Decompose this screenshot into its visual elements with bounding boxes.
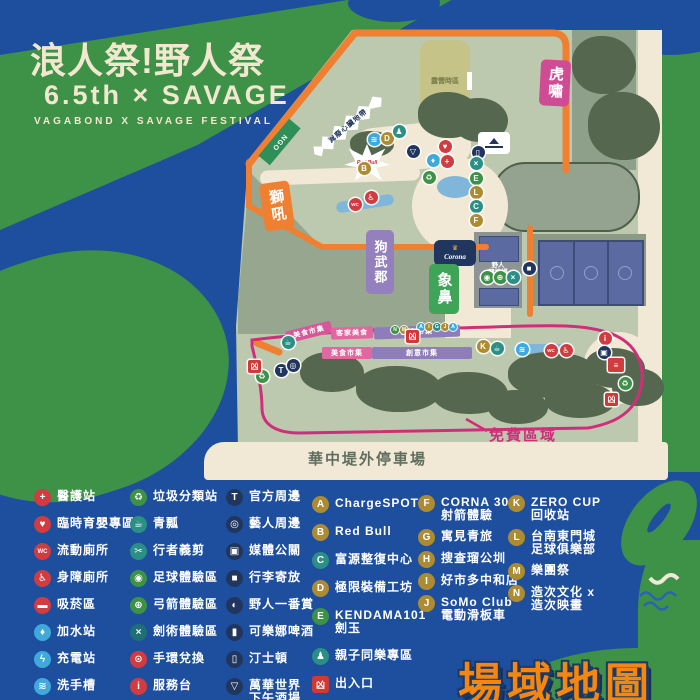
legend-A-icon: A xyxy=(312,496,329,513)
legend-label: Red Bull xyxy=(335,525,392,538)
legend-i-icon: i xyxy=(130,678,147,695)
booth-dot-J: J xyxy=(441,323,449,331)
legend-label: 可樂娜啤酒 xyxy=(249,625,314,638)
handwash-marker: ≋ xyxy=(368,133,381,146)
legend-item-加水站: ♦加水站 xyxy=(34,625,96,641)
legend-item-弓箭體驗區: ⊕弓箭體驗區 xyxy=(130,598,218,614)
legend-label: 搜查瑠公圳 xyxy=(441,552,506,565)
legend-item-汀士頓: ▯汀士頓 xyxy=(226,652,288,668)
camping-gate xyxy=(467,72,472,90)
market-band: 客家美食 xyxy=(331,326,373,339)
recycle-marker: ♻ xyxy=(619,377,632,390)
festival-map-poster: 浪人祭!野人祭 6.5th × SAVAGE VAGABOND X SAVAGE… xyxy=(0,0,700,700)
tree xyxy=(488,390,548,424)
poster-subtitle: 6.5th × SAVAGE xyxy=(44,80,290,111)
accessible-toilet-marker: ♿ xyxy=(365,191,378,204)
crown-icon: ♛ xyxy=(452,245,458,253)
legend-F-icon: F xyxy=(418,495,435,512)
legend-item-野人一番賞: ◐野人一番賞 xyxy=(226,598,314,614)
stage-label-狗武郡: 狗武郡 xyxy=(366,230,394,294)
legend-label: 洗手槽 xyxy=(57,679,96,692)
booth-l-marker: L xyxy=(470,186,483,199)
legend-item-富源整復中心: C富源整復中心 xyxy=(312,553,413,569)
pond xyxy=(437,176,473,198)
legend-label: 親子同樂專區 xyxy=(335,649,413,662)
legend-⊙-icon: ⊙ xyxy=(130,651,147,668)
legend-K-icon: K xyxy=(508,495,525,512)
merch-marker: T xyxy=(275,364,288,377)
legend-item-媒體公關: ▣媒體公關 xyxy=(226,544,301,560)
legend-item-ZERO CUP: KZERO CUP回收站 xyxy=(508,496,601,522)
legend-✂-icon: ✂ xyxy=(130,543,147,560)
legend-label: 極限裝備工坊 xyxy=(335,581,413,594)
legend-label: SoMo Club電動滑板車 xyxy=(441,596,513,622)
legend-⊕-icon: ⊕ xyxy=(130,597,147,614)
legend-label: 足球體驗區 xyxy=(153,571,218,584)
legend-label: 汀士頓 xyxy=(249,652,288,665)
stage-label-象鼻: 象鼻 xyxy=(429,264,459,314)
legend-label: 醫護站 xyxy=(57,490,96,503)
legend-item-可樂娜啤酒: ▮可樂娜啤酒 xyxy=(226,625,314,641)
legend-label: 充電站 xyxy=(57,652,96,665)
booth-b-marker: B xyxy=(358,162,371,175)
poster-tagline: VAGABOND X SAVAGE FESTIVAL xyxy=(34,116,273,127)
legend-♦-icon: ♦ xyxy=(34,624,51,641)
legend-J-icon: J xyxy=(418,595,435,612)
water-station-marker: ♦ xyxy=(427,154,440,167)
booth-dot-N: N xyxy=(391,326,399,334)
legend-label: 手環兌換 xyxy=(153,652,205,665)
legend-T-icon: T xyxy=(226,489,243,506)
legend-ϟ-icon: ϟ xyxy=(34,651,51,668)
booth-f-marker: F xyxy=(470,214,483,227)
legend-label: 加水站 xyxy=(57,625,96,638)
legend-I-icon: I xyxy=(418,573,435,590)
legend-E-icon: E xyxy=(312,608,329,625)
booth-dot-I: I xyxy=(425,323,433,331)
toilet-marker: WC xyxy=(545,344,558,357)
running-track xyxy=(492,162,640,232)
fencing-marker: × xyxy=(470,157,483,170)
legend-item-洗手槽: ≋洗手槽 xyxy=(34,679,96,695)
market-band: 創意市集 xyxy=(372,347,472,359)
legend-item-手環兌換: ⊙手環兌換 xyxy=(130,652,205,668)
legend-label: ChargeSPOT xyxy=(335,497,419,510)
legend-label: 流動廁所 xyxy=(57,544,109,557)
legend-label: 野人一番賞 xyxy=(249,598,314,611)
legend-item-劍術體驗區: ×劍術體驗區 xyxy=(130,625,218,641)
legend-item-極限裝備工坊: D極限裝備工坊 xyxy=(312,581,413,597)
legend-label: 弓箭體驗區 xyxy=(153,598,218,611)
legend-◐-icon: ◐ xyxy=(226,597,243,614)
legend-label: 造次文化 x造次映畫 xyxy=(531,586,595,612)
legend-▯-icon: ▯ xyxy=(226,651,243,668)
legend-item-醫護站: +醫護站 xyxy=(34,490,96,506)
corona-stage-logo: ♛ Corona xyxy=(434,240,476,266)
legend-item-ChargeSPOT: AChargeSPOT xyxy=(312,497,419,513)
free-zone-label: 免費區域 xyxy=(489,424,557,445)
legend-label: 藝人周邊 xyxy=(249,517,301,530)
cup-rental-marker: ☕ xyxy=(491,342,504,355)
legend-item-行李寄放: ■行李寄放 xyxy=(226,571,301,587)
legend-item-寓見青旅: G寓見青旅 xyxy=(418,530,493,546)
legend-label: 寓見青旅 xyxy=(441,530,493,543)
page-title: 場域地圖 xyxy=(458,648,654,700)
basketball-courts xyxy=(538,240,644,306)
legend-item-青瓢: ☕青瓢 xyxy=(130,517,179,533)
legend-item-服務台: i服務台 xyxy=(130,679,192,695)
legend-B-icon: B xyxy=(312,524,329,541)
legend-N-icon: N xyxy=(508,585,525,602)
recycle-marker: ♻ xyxy=(423,171,436,184)
legend-label: ZERO CUP回收站 xyxy=(531,496,601,522)
tree xyxy=(356,366,442,412)
legend-label: 行者義剪 xyxy=(153,544,205,557)
legend-item-造次文化 x: N造次文化 x造次映畫 xyxy=(508,586,595,612)
food-stand-marker: ≡ xyxy=(608,358,624,372)
legend-H-icon: H xyxy=(418,551,435,568)
kids-area-marker: ♟ xyxy=(393,125,406,138)
legend-≋-icon: ≋ xyxy=(34,678,51,695)
booth-dot-A: A xyxy=(449,323,457,331)
legend-WC-icon: WC xyxy=(34,543,51,560)
legend-item-SoMo Club: JSoMo Club電動滑板車 xyxy=(418,596,513,622)
arena-block: 野人競技場 xyxy=(474,232,522,308)
legend-▣-icon: ▣ xyxy=(226,543,243,560)
legend-item-身障廁所: ♿身障廁所 xyxy=(34,571,109,587)
handwash-marker: ≋ xyxy=(516,343,529,356)
legend-item-藝人周邊: ◎藝人周邊 xyxy=(226,517,301,533)
nursing-marker: ♥ xyxy=(439,140,452,153)
green-band-right xyxy=(658,0,700,472)
sword-marker: × xyxy=(507,271,520,284)
booth-dot-G: G xyxy=(433,323,441,331)
legend-item-萬華世界: ▽萬華世界下午酒場 xyxy=(226,679,301,700)
legend-label: 萬華世界下午酒場 xyxy=(249,679,301,700)
legend-◎-icon: ◎ xyxy=(226,516,243,533)
legend-item-搜查瑠公圳: H搜查瑠公圳 xyxy=(418,552,506,568)
exit-marker: 凶 xyxy=(605,393,618,406)
legend-item-吸菸區: ▬吸菸區 xyxy=(34,598,96,614)
legend-♻-icon: ♻ xyxy=(130,489,147,506)
legend-label: KENDAMA101劍玉 xyxy=(335,609,426,635)
legend-label: 垃圾分類站 xyxy=(153,490,218,503)
stage-label-虎嘯: 虎嘯 xyxy=(539,59,571,107)
legend-item-台南東門城: L台南東門城足球俱樂部 xyxy=(508,530,596,556)
tree xyxy=(588,92,660,160)
stage-label-獅吼: 獅吼 xyxy=(259,180,295,232)
legend-label: CORNA 30射箭體驗 xyxy=(441,496,509,522)
booth-d-marker: D xyxy=(381,132,394,145)
legend-L-icon: L xyxy=(508,529,525,546)
legend-♟-icon: ♟ xyxy=(312,648,329,665)
legend-label: 出入口 xyxy=(335,677,374,690)
legend-item-行者義剪: ✂行者義剪 xyxy=(130,544,205,560)
legend-item-好市多中和店: I好市多中和店 xyxy=(418,574,519,590)
artist-merch-marker: ◎ xyxy=(287,359,300,372)
legend-label: 官方周邊 xyxy=(249,490,301,503)
accessible-toilet-marker: ♿ xyxy=(560,344,573,357)
legend-item-流動廁所: WC流動廁所 xyxy=(34,544,109,560)
legend-M-icon: M xyxy=(508,563,525,580)
legend-item-Red Bull: BRed Bull xyxy=(312,525,392,541)
legend-◉-icon: ◉ xyxy=(130,570,147,587)
legend-label: 媒體公關 xyxy=(249,544,301,557)
legend-☕-icon: ☕ xyxy=(130,516,147,533)
locker-marker: ■ xyxy=(523,262,536,275)
legend-item-出入口: 凶出入口 xyxy=(312,677,374,693)
exit-icon: 凶 xyxy=(312,676,329,693)
parking-area xyxy=(204,442,668,480)
legend-C-icon: C xyxy=(312,552,329,569)
legend-item-足球體驗區: ◉足球體驗區 xyxy=(130,571,218,587)
info-marker: i xyxy=(599,332,612,345)
legend-item-CORNA 30: FCORNA 30射箭體驗 xyxy=(418,496,509,522)
legend-item-官方周邊: T官方周邊 xyxy=(226,490,301,506)
legend-▬-icon: ▬ xyxy=(34,597,51,614)
legend-■-icon: ■ xyxy=(226,570,243,587)
legend-label: 樂團祭 xyxy=(531,564,570,577)
legend-item-樂團祭: M樂團祭 xyxy=(508,564,570,580)
legend-label: 台南東門城足球俱樂部 xyxy=(531,530,596,556)
legend-D-icon: D xyxy=(312,580,329,597)
arena-mini-court xyxy=(479,236,519,262)
legend-item-垃圾分類站: ♻垃圾分類站 xyxy=(130,490,218,506)
legend-item-親子同樂專區: ♟親子同樂專區 xyxy=(312,649,413,665)
poster-title: 浪人祭!野人祭 xyxy=(30,32,265,84)
booth-e-marker: E xyxy=(470,172,483,185)
tree xyxy=(572,36,636,94)
cup-rental-marker: ☕ xyxy=(282,336,295,349)
archery-marker: ⊕ xyxy=(494,271,507,284)
first-aid-marker: + xyxy=(441,155,454,168)
exit-marker: 凶 xyxy=(248,360,261,373)
media-marker: ▣ xyxy=(598,346,611,359)
legend-♥-icon: ♥ xyxy=(34,516,51,533)
exit-marker: 凶 xyxy=(406,330,419,343)
arena-mini-court-2 xyxy=(479,288,519,306)
mountain-crest-icon xyxy=(489,138,499,144)
parking-label: 華中堤外停車場 xyxy=(308,448,427,469)
legend-label: 富源整復中心 xyxy=(335,553,413,566)
legend-item-臨時育嬰專區: ♥臨時育嬰專區 xyxy=(34,517,135,533)
legend-label: 身障廁所 xyxy=(57,571,109,584)
booth-c-marker: C xyxy=(470,200,483,213)
camping-zone-label: 露營時區 xyxy=(431,76,459,86)
legend-label: 吸菸區 xyxy=(57,598,96,611)
legend-item-KENDAMA101: EKENDAMA101劍玉 xyxy=(312,609,426,635)
legend-+-icon: + xyxy=(34,489,51,506)
bar-marker: ▽ xyxy=(407,145,420,158)
legend-♿-icon: ♿ xyxy=(34,570,51,587)
market-band: 美食市集 xyxy=(322,347,372,359)
legend-item-充電站: ϟ充電站 xyxy=(34,652,96,668)
legend-label: 行李寄放 xyxy=(249,571,301,584)
toilet-marker: WC xyxy=(349,198,362,211)
legend-G-icon: G xyxy=(418,529,435,546)
legend-×-icon: × xyxy=(130,624,147,641)
legend-label: 服務台 xyxy=(153,679,192,692)
booth-k-marker: K xyxy=(477,340,490,353)
legend-label: 劍術體驗區 xyxy=(153,625,218,638)
legend-label: 青瓢 xyxy=(153,517,179,530)
legend-▽-icon: ▽ xyxy=(226,678,243,695)
legend-label: 臨時育嬰專區 xyxy=(57,517,135,530)
legend-▮-icon: ▮ xyxy=(226,624,243,641)
soccer-marker: ◉ xyxy=(481,271,494,284)
